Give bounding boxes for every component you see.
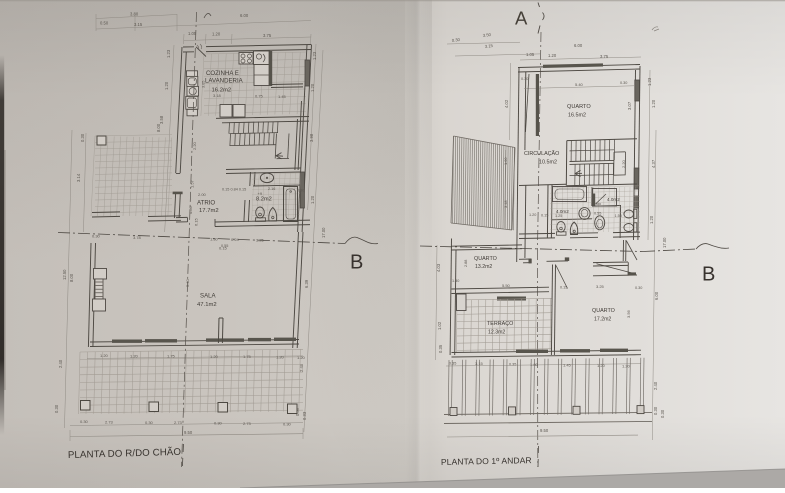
svg-text:0.50: 0.50	[100, 21, 109, 26]
svg-text:2.20: 2.20	[621, 159, 626, 168]
svg-text:1.02: 1.02	[437, 321, 442, 330]
svg-text:1.20: 1.20	[649, 215, 654, 224]
svg-text:1.50: 1.50	[615, 214, 622, 218]
svg-text:5.50: 5.50	[502, 283, 511, 288]
svg-text:0.35: 0.35	[449, 362, 456, 366]
svg-text:2.40: 2.40	[653, 381, 658, 390]
svg-text:QUARTO: QUARTO	[592, 308, 615, 314]
svg-text:0.30: 0.30	[521, 77, 528, 81]
svg-text:5.40: 5.40	[575, 82, 584, 87]
svg-text:3.58: 3.58	[159, 115, 164, 124]
svg-text:1.20: 1.20	[651, 99, 656, 108]
svg-text:12.3m2: 12.3m2	[488, 330, 505, 336]
svg-text:0.35: 0.35	[438, 344, 443, 353]
svg-text:0.15: 0.15	[541, 214, 548, 218]
svg-text:3.48: 3.48	[503, 200, 508, 208]
svg-text:1.45: 1.45	[278, 94, 287, 99]
svg-text:6.15: 6.15	[194, 217, 199, 226]
svg-text:3.14: 3.14	[76, 173, 81, 182]
svg-text:0.30: 0.30	[214, 421, 223, 426]
svg-text:4.02: 4.02	[504, 99, 509, 108]
svg-text:0.86: 0.86	[188, 205, 193, 214]
svg-text:6.00: 6.00	[654, 291, 659, 300]
svg-text:8.00: 8.00	[69, 273, 74, 282]
svg-text:A: A	[515, 8, 528, 29]
svg-text:17.00: 17.00	[662, 237, 667, 248]
svg-text:6.39: 6.39	[304, 279, 309, 288]
svg-text:1.00: 1.00	[503, 157, 508, 165]
svg-text:0.33: 0.33	[302, 411, 307, 420]
svg-text:1.20: 1.20	[622, 364, 631, 369]
svg-text:3.15: 3.15	[134, 22, 143, 27]
svg-text:0.55: 0.55	[594, 212, 601, 216]
svg-text:1.20: 1.20	[210, 354, 219, 359]
svg-text:2.73: 2.73	[174, 420, 183, 425]
svg-text:47.1m2: 47.1m2	[197, 302, 217, 308]
svg-text:1.20: 1.20	[548, 53, 557, 58]
svg-text:0.55: 0.55	[221, 244, 228, 248]
svg-text:1.30: 1.30	[452, 279, 459, 283]
svg-text:PLANTA DO 1º ANDAR: PLANTA DO 1º ANDAR	[441, 455, 532, 467]
svg-text:12.50: 12.50	[62, 269, 67, 280]
svg-text:16.5m2: 16.5m2	[568, 113, 586, 119]
svg-text:0.35: 0.35	[509, 363, 516, 367]
svg-text:3.07: 3.07	[627, 101, 632, 110]
svg-text:3.75: 3.75	[600, 54, 609, 59]
svg-text:3.56: 3.56	[626, 309, 631, 318]
svg-text:0.30: 0.30	[80, 133, 85, 142]
svg-text:1.05: 1.05	[526, 52, 535, 57]
svg-text:1.20: 1.20	[597, 363, 606, 368]
svg-text:3.18: 3.18	[213, 93, 222, 98]
svg-text:9.50: 9.50	[540, 428, 549, 433]
svg-text:B: B	[702, 264, 715, 286]
svg-text:2.40: 2.40	[58, 359, 63, 368]
svg-text:1.20: 1.20	[276, 355, 285, 360]
svg-text:2.16: 2.16	[268, 187, 275, 191]
svg-text:0.30: 0.30	[653, 406, 658, 415]
svg-text:1.20: 1.20	[310, 195, 315, 204]
svg-text:3.80: 3.80	[130, 12, 139, 17]
svg-text:1.20: 1.20	[310, 83, 315, 92]
svg-text:0.30: 0.30	[620, 81, 627, 85]
svg-text:0.30: 0.30	[80, 419, 89, 424]
svg-text:LAVANDERIA: LAVANDERIA	[205, 78, 244, 85]
svg-text:0.30: 0.30	[145, 420, 154, 425]
svg-text:0.15 0.84 0.15: 0.15 0.84 0.15	[222, 188, 246, 192]
svg-text:2.00: 2.00	[198, 192, 207, 197]
svg-text:4.37: 4.37	[651, 159, 656, 168]
svg-text:3.98: 3.98	[309, 133, 314, 142]
svg-text:0.75: 0.75	[255, 94, 264, 99]
svg-text:1.25: 1.25	[555, 214, 562, 218]
svg-text:1.20: 1.20	[297, 355, 306, 360]
svg-text:9.50: 9.50	[184, 430, 193, 435]
svg-text:10.5m2: 10.5m2	[539, 160, 557, 166]
svg-text:QUARTO: QUARTO	[474, 256, 497, 262]
svg-text:0.30: 0.30	[660, 409, 665, 418]
svg-text:COZINHA E: COZINHA E	[206, 70, 239, 77]
svg-text:1.20: 1.20	[212, 32, 221, 37]
svg-text:1.20: 1.20	[130, 354, 139, 359]
svg-text:QUARTO: QUARTO	[567, 104, 591, 110]
svg-text:0.30: 0.30	[54, 404, 59, 413]
svg-text:2.73: 2.73	[243, 421, 252, 426]
svg-text:17.7m2: 17.7m2	[199, 208, 219, 214]
svg-text:6.00: 6.00	[574, 43, 583, 48]
svg-text:1.23: 1.23	[647, 77, 652, 86]
svg-text:ATRIO: ATRIO	[197, 200, 215, 207]
svg-text:0.30: 0.30	[297, 189, 304, 193]
svg-text:SALA: SALA	[200, 293, 217, 300]
svg-text:6.00: 6.00	[240, 13, 249, 18]
svg-text:2.73: 2.73	[105, 420, 114, 425]
svg-text:2.88: 2.88	[464, 260, 468, 267]
svg-text:1.57: 1.57	[190, 179, 195, 188]
svg-text:+9: +9	[258, 191, 263, 196]
svg-text:8.2m2: 8.2m2	[256, 197, 272, 203]
svg-text:CIRCULAÇÃO: CIRCULAÇÃO	[524, 150, 559, 157]
svg-text:1.20: 1.20	[100, 353, 109, 358]
svg-text:1.75: 1.75	[243, 354, 252, 359]
svg-text:2.20: 2.20	[192, 141, 197, 150]
svg-text:0.30: 0.30	[635, 286, 642, 290]
svg-text:TERRAÇO: TERRAÇO	[487, 321, 513, 327]
svg-text:13.2m2: 13.2m2	[475, 264, 492, 270]
svg-text:4.0m2: 4.0m2	[607, 197, 620, 202]
svg-text:1.23: 1.23	[166, 49, 171, 58]
svg-text:0.30: 0.30	[283, 422, 292, 427]
svg-text:1.75: 1.75	[167, 354, 176, 359]
svg-text:17.2m2: 17.2m2	[594, 317, 611, 323]
svg-text:17.00: 17.00	[321, 227, 326, 238]
svg-text:1.45: 1.45	[563, 363, 572, 368]
svg-text:1.20: 1.20	[529, 213, 536, 217]
svg-text:16.2m2: 16.2m2	[212, 88, 232, 94]
svg-text:3.75: 3.75	[263, 33, 272, 38]
svg-text:3.25: 3.25	[596, 284, 605, 289]
svg-text:1.23: 1.23	[312, 51, 317, 60]
svg-text:B: B	[350, 252, 363, 274]
svg-text:1.20: 1.20	[164, 81, 169, 90]
svg-text:1.80: 1.80	[210, 237, 219, 242]
